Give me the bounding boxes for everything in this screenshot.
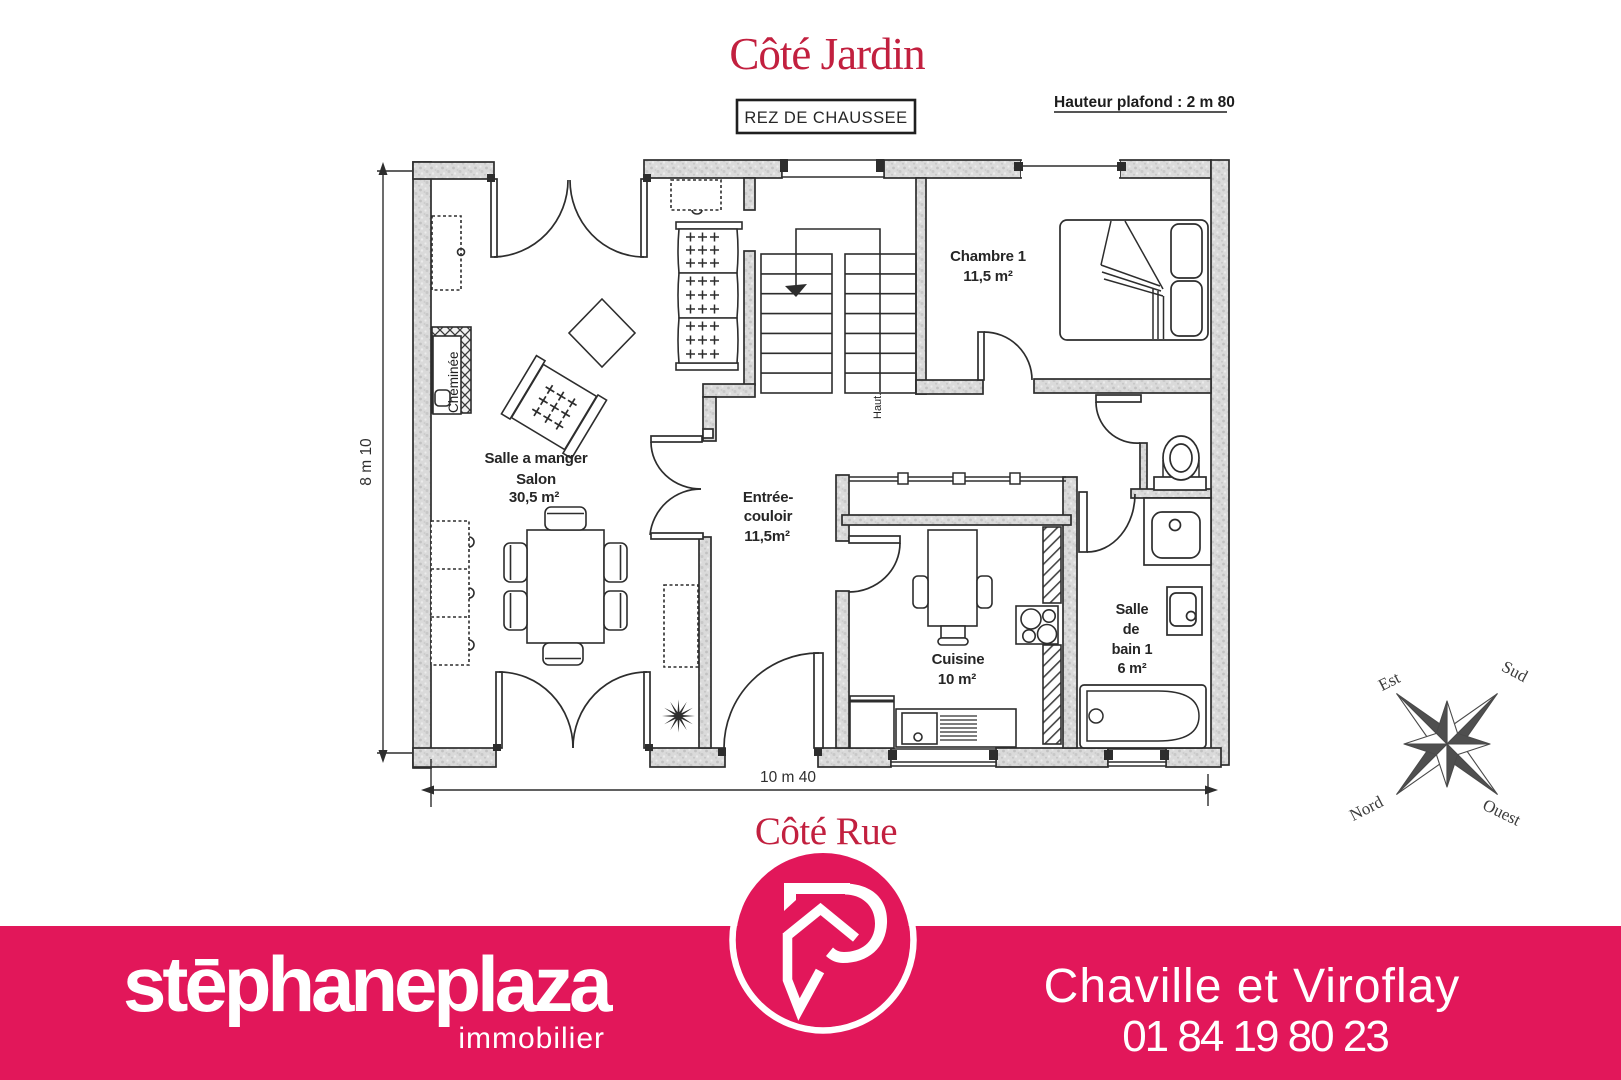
svg-text:11,5m²: 11,5m² [744, 528, 790, 545]
svg-text:11,5 m²: 11,5 m² [963, 268, 1013, 285]
svg-text:stēphaneplaza: stēphaneplaza [123, 940, 613, 1028]
svg-text:Ouest: Ouest [1480, 795, 1524, 830]
svg-text:Côté Jardin: Côté Jardin [729, 29, 925, 79]
svg-text:30,5 m²: 30,5 m² [509, 489, 559, 506]
svg-text:de: de [1123, 622, 1140, 638]
svg-text:Haut.: Haut. [872, 393, 884, 419]
svg-text:bain 1: bain 1 [1112, 642, 1153, 658]
svg-text:10 m 40: 10 m 40 [760, 769, 816, 786]
svg-text:6 m²: 6 m² [1117, 661, 1146, 677]
svg-text:Est: Est [1375, 668, 1403, 695]
svg-text:Nord: Nord [1346, 792, 1386, 825]
svg-text:Cuisine: Cuisine [932, 651, 985, 668]
svg-text:10 m²: 10 m² [938, 671, 976, 688]
svg-text:Chaville et Viroflay: Chaville et Viroflay [1044, 960, 1461, 1013]
svg-text:Entrée-: Entrée- [743, 489, 793, 506]
svg-text:Cheminée: Cheminée [446, 351, 461, 413]
svg-text:Salon: Salon [516, 471, 556, 488]
svg-text:01 84 19 80 23: 01 84 19 80 23 [1122, 1012, 1388, 1061]
svg-text:Chambre 1: Chambre 1 [950, 248, 1026, 265]
svg-text:8 m 10: 8 m 10 [358, 438, 375, 486]
svg-text:Hauteur plafond : 2 m 80: Hauteur plafond : 2 m 80 [1054, 94, 1235, 111]
svg-text:Salle: Salle [1116, 602, 1149, 618]
svg-text:couloir: couloir [744, 508, 793, 525]
svg-text:Sud: Sud [1499, 657, 1532, 686]
svg-text:Salle a manger: Salle a manger [484, 450, 587, 467]
svg-text:immobilier: immobilier [458, 1022, 605, 1055]
svg-text:REZ DE CHAUSSEE: REZ DE CHAUSSEE [744, 109, 907, 127]
